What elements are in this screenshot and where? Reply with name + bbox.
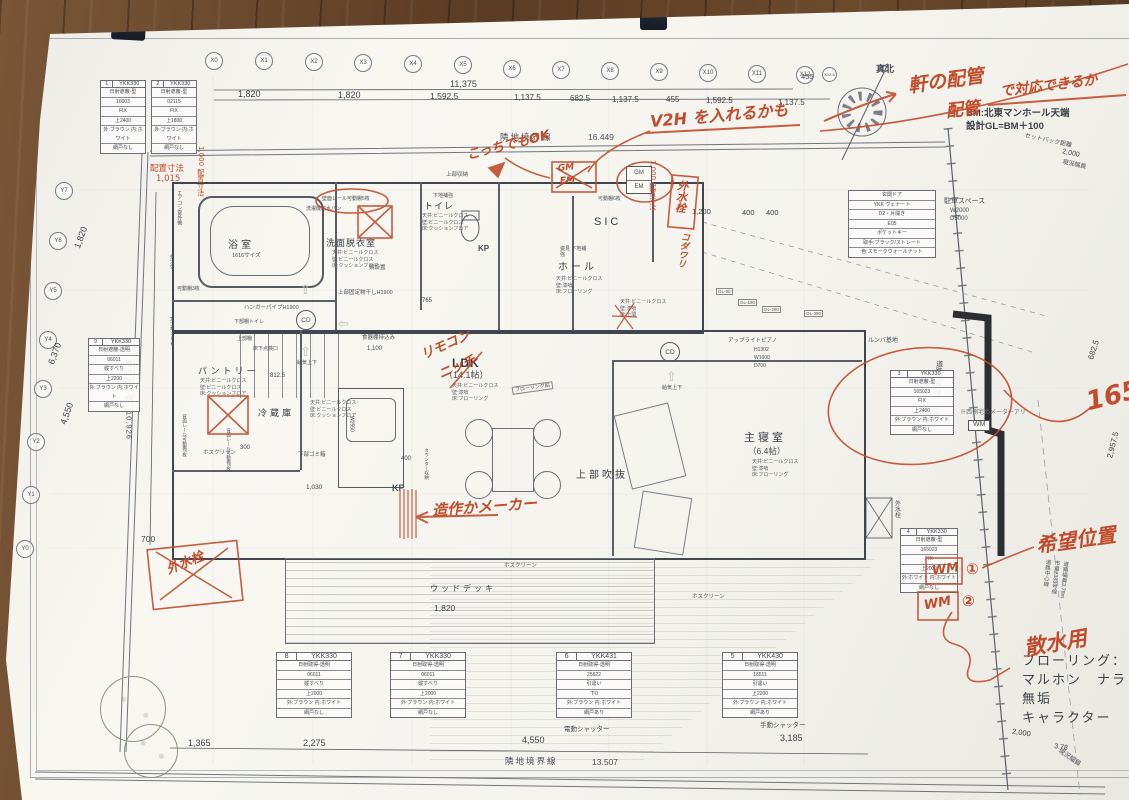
red-dim-haichi-value: 1,015 bbox=[156, 174, 180, 185]
dim-porch-400a: 400 bbox=[742, 208, 755, 217]
gl-tag: GL-190 bbox=[738, 299, 757, 306]
cd-text: CD bbox=[665, 349, 674, 356]
grid-label-y: Y5 bbox=[44, 282, 62, 300]
repeat-row: 床:クッションフロア bbox=[422, 226, 468, 233]
dim-bottom-3185: 3,185 bbox=[780, 733, 803, 744]
partition bbox=[612, 360, 862, 362]
repeat-row: 06011 bbox=[277, 671, 351, 681]
repeat-row: 上1800 bbox=[152, 117, 196, 127]
repeat-row: 165023 bbox=[891, 388, 953, 398]
repeat-row: 25622 bbox=[557, 671, 631, 681]
room-finishes-genkan: 天井:ビニールクロス壁:漆喰床:土間 bbox=[620, 299, 666, 319]
repeat-row: 網戸なし bbox=[152, 144, 196, 153]
repeat-row: 日射取得-透明 bbox=[277, 661, 351, 671]
red-dim-haichi-x9: 1,000 配置寸法 bbox=[648, 160, 657, 210]
grid-label-x: X6 bbox=[503, 60, 521, 78]
repeat-row: 網戸なし bbox=[277, 709, 351, 718]
dim-segment: 455 bbox=[666, 95, 679, 105]
window-schedule-6: 6YKK431 日射取得-透明25622引違い下0外:ブラウン 内:ホワイト網戸… bbox=[556, 652, 632, 718]
grid-label-x: X1 bbox=[255, 52, 273, 70]
dim-segment: 1,592.5 bbox=[430, 91, 458, 102]
label-piano-d: D700 bbox=[754, 363, 766, 369]
repeat-row: FIX bbox=[152, 107, 196, 117]
dim-400: 400 bbox=[401, 456, 411, 464]
vent-arrow-icon: ⇧ bbox=[300, 344, 311, 360]
label-manual-shutter: 手動シャッター bbox=[760, 722, 806, 730]
repeat-row: 日射遮蔽-型 bbox=[891, 378, 953, 388]
label-neighbor-meter: ※西側宅のメーターアリ bbox=[960, 410, 1026, 418]
label-shelves3: 可動棚3枚 bbox=[177, 286, 200, 292]
repeat-row: 床:土間 bbox=[620, 312, 666, 319]
grid-label-x: X12.5 bbox=[822, 67, 837, 82]
label-upper-shelf: 上部棚 bbox=[237, 336, 252, 342]
road-center-label: 道路中心線 市道2383号線 道路幅員3.78m bbox=[1040, 559, 1068, 599]
repeat-row: 上2000 bbox=[391, 690, 465, 700]
schedule-num: 3 bbox=[891, 371, 908, 377]
dim-8125: 812.5 bbox=[270, 373, 285, 381]
label-mirror-backing: 姿見 下地補強 bbox=[560, 246, 590, 259]
repeat-row: 16003 bbox=[101, 98, 145, 108]
room-name-fridge: 冷蔵庫 bbox=[258, 408, 294, 419]
label-electric-shutter: 電動シャッター bbox=[564, 726, 610, 734]
label-mirror: 鏡設置 bbox=[369, 265, 386, 272]
repeat-row: マルホン ナラ無垢 bbox=[1022, 671, 1129, 709]
repeat-row: YKK ヴェナート bbox=[849, 201, 935, 211]
repeat-row: 網戸なし bbox=[391, 709, 465, 718]
repeat-row: 日射遮蔽-透明 bbox=[89, 346, 139, 356]
dim-segment: 1,820 bbox=[338, 90, 361, 101]
repeat-row: D2・片開き bbox=[849, 210, 935, 220]
cd-marker: CD bbox=[660, 342, 680, 362]
room-name-sic: SIC bbox=[594, 216, 621, 230]
label-hosuku-3: ホスクリーン bbox=[692, 594, 725, 601]
repeat-row: 外:ブラウン 内:ホワイト bbox=[89, 384, 139, 402]
dim-1100: 1,100 bbox=[367, 346, 382, 354]
repeat-row: 縦すべり bbox=[89, 365, 139, 375]
room-finishes-bed: 天井:ビニールクロス壁:漆喰床:フローリング bbox=[752, 459, 798, 479]
repeat-row: 06011 bbox=[391, 671, 465, 681]
bm-note-line1: BM:北東マンホール天端 bbox=[966, 108, 1069, 120]
repeat-row: ポケットキー bbox=[849, 229, 935, 239]
bedroom-furniture bbox=[634, 490, 692, 555]
room-finishes-pantry: 天井:ビニールクロス壁:ビニールクロス床:クッションフロア bbox=[200, 378, 246, 398]
label-trash: 下部ゴミ箱 bbox=[298, 452, 326, 459]
room-name-pantry: パントリー bbox=[198, 366, 258, 377]
repeat-row: 下0 bbox=[557, 690, 631, 700]
repeat-row: E05 bbox=[849, 220, 935, 230]
dim-segment: 1,137.5 bbox=[612, 95, 639, 105]
dim-bottom-2275: 2,275 bbox=[303, 738, 326, 749]
partition bbox=[420, 182, 422, 310]
schedule-code: YKK330 bbox=[411, 653, 465, 660]
window-schedule-9: 9YKK330 日射遮蔽-透明06011縦すべり上2200外:ブラウン 内:ホワ… bbox=[88, 338, 140, 412]
room-finishes-hall: 天井:ビニールクロス壁:漆喰床:フローリング bbox=[556, 276, 602, 296]
schedule-rows: 日射取得-透明06011縦すべり上2000外:ブラウン 内:ホワイト網戸なし bbox=[277, 661, 351, 717]
grid-label-x: X8 bbox=[601, 62, 619, 80]
parking-title: 駐車スペース bbox=[944, 198, 985, 207]
bathtub-inner bbox=[210, 206, 310, 276]
schedule-code: YKK430 bbox=[743, 653, 797, 660]
partition bbox=[172, 300, 335, 302]
label-piano-w: W1600 bbox=[754, 355, 770, 361]
repeat-row: 06011 bbox=[89, 356, 139, 366]
grid-label-x: X11 bbox=[748, 65, 766, 83]
label-wm-printed: WM bbox=[968, 420, 990, 431]
label-floor-hatch: 床下点検口 bbox=[253, 346, 278, 352]
repeat-row: 引違い bbox=[557, 680, 631, 690]
repeat-row: 色:スモークウォールナット bbox=[849, 248, 935, 257]
grid-label-x: X2 bbox=[305, 53, 323, 71]
dining-chair bbox=[533, 471, 561, 499]
label-dish-cabinet: 食器棚持込み bbox=[362, 335, 395, 342]
schedule-num: 2 bbox=[152, 81, 164, 87]
label-hanger-pipe: ハンガーパイプH1900 bbox=[244, 305, 299, 312]
repeat-row: 取手:ブラック/ストレート bbox=[849, 239, 935, 249]
grid-label-x: X5 bbox=[454, 56, 472, 74]
grid-label-y: Y1 bbox=[22, 486, 40, 504]
label-outdoor-tap-printed: 外水栓 bbox=[892, 500, 900, 518]
grid-label-x: X9 bbox=[650, 63, 668, 81]
label-counter-storage: カウンター収納 bbox=[424, 448, 430, 480]
schedule-num: 5 bbox=[723, 653, 743, 660]
dim-w2550: W2550 bbox=[348, 416, 354, 432]
repeat-row: 天井:ビニールクロス bbox=[422, 213, 468, 220]
label-vent-2: 給気上下 bbox=[662, 385, 682, 391]
room-name-toilet: トイレ bbox=[424, 201, 454, 212]
grid-label-x: X4 bbox=[404, 55, 422, 73]
repeat-row: 網戸なし bbox=[89, 402, 139, 411]
repeat-row: 日射遮蔽-型 bbox=[901, 536, 957, 546]
schedule-rows: 日射遮蔽-型16003FIX上2400外:ブラウン 内:ホワイト網戸なし bbox=[101, 88, 145, 153]
grid-label-y: Y6 bbox=[49, 232, 67, 250]
dim-segment: 1,137.5 bbox=[514, 93, 541, 103]
plan-sheet: X0 X1 X2 X3 X4 X5 X6 X7 X8 X9 X10 X11 X1… bbox=[0, 0, 1129, 800]
grid-label-x: X7 bbox=[552, 61, 570, 79]
label-ecocute: エコキュート bbox=[168, 316, 174, 346]
red-note-haikan-2: 配管 bbox=[945, 98, 981, 123]
cd-text: CD bbox=[301, 317, 310, 324]
parking-w: W2000 bbox=[950, 208, 969, 216]
dim-x12-offset: 455 bbox=[801, 72, 814, 81]
repeat-row: 165023 bbox=[901, 546, 957, 556]
repeat-row: 外:ブラウン 内:ホワイト bbox=[152, 126, 196, 144]
repeat-row: 16511 bbox=[723, 671, 797, 681]
label-wall-rail: 壁面レール可動棚5枚 bbox=[322, 196, 370, 202]
red-sketch-em: EM bbox=[560, 175, 576, 187]
grid-label-y: Y2 bbox=[27, 433, 45, 451]
photo-scene: X0 X1 X2 X3 X4 X5 X6 X7 X8 X9 X10 X11 X1… bbox=[0, 0, 1129, 800]
window-schedule-7: 7YKK330 日射取得-透明06011縦すべり上2000外:ブラウン 内:ホワ… bbox=[390, 652, 466, 718]
repeat-row: 網戸あり bbox=[557, 709, 631, 718]
north-label: 真北 bbox=[876, 64, 894, 75]
dining-table bbox=[492, 428, 534, 492]
flooring-note: フローリング：マルホン ナラ無垢キャラクター bbox=[1022, 652, 1129, 727]
repeat-row: 日射取得-透明 bbox=[723, 661, 797, 671]
schedule-code: YKK330 bbox=[164, 81, 196, 87]
dim-deck-1820: 1,820 bbox=[434, 603, 455, 614]
grid-label-x: X10 bbox=[699, 64, 717, 82]
repeat-row: 天井:ビニールクロス bbox=[556, 276, 602, 283]
dim-segment: 682.5 bbox=[570, 94, 590, 104]
repeat-row: 天井:ビニールクロス bbox=[452, 383, 498, 390]
repeat-row: 外:ブラウン 内:ホワイト bbox=[723, 699, 797, 709]
repeat-row: 天井:ビニールクロス bbox=[310, 400, 356, 407]
red-dim-haichi-left: 1,000 配置寸法 bbox=[196, 146, 205, 196]
schedule-num: 4 bbox=[901, 529, 917, 535]
dining-chair bbox=[533, 419, 561, 447]
room-name-deck: ウッドデッキ bbox=[430, 584, 496, 594]
repeat-row: 外:ブラウン 内:ホワイト bbox=[277, 699, 351, 709]
schedule-code: YKK330 bbox=[103, 339, 139, 345]
repeat-row: 玄関ドア bbox=[849, 191, 935, 201]
repeat-row: 床:フローリング bbox=[556, 289, 602, 296]
schedule-rows: 日射取得-透明06011縦すべり上2000外:ブラウン 内:ホワイト網戸なし bbox=[391, 661, 465, 717]
room-finishes-ldk: 天井:ビニールクロス壁:漆喰床:フローリング bbox=[452, 383, 498, 403]
repeat-row: 上2400 bbox=[891, 407, 953, 417]
label-piano: アップライトピアノ bbox=[728, 338, 777, 345]
repeat-row: キャラクター bbox=[1022, 709, 1129, 728]
label-kp-2: KP bbox=[478, 244, 489, 254]
label-vent-1: 給気上下 bbox=[297, 360, 317, 366]
repeat-row: 外:ブラウン 内:ホワイト bbox=[891, 416, 953, 426]
label-hosuku-2: ホスクリーン bbox=[504, 563, 537, 570]
schedule-code: YKK431 bbox=[577, 653, 631, 660]
repeat-row: 網戸あり bbox=[723, 709, 797, 718]
repeat-row: 外:ブラウン 内:ホワイト bbox=[101, 126, 145, 144]
repeat-row: 網戸なし bbox=[901, 584, 957, 593]
window-schedule-5: 5YKK430 日射取得-透明16511引違い上2200外:ブラウン 内:ホワイ… bbox=[722, 652, 798, 718]
repeat-row: 縦すべり bbox=[277, 680, 351, 690]
label-lower-shelf-toilet: 下部棚トイレ bbox=[234, 319, 264, 325]
schedule-rows: 日射遮蔽-型02115FIX上1800外:ブラウン 内:ホワイト網戸なし bbox=[152, 88, 196, 153]
dim-1030: 1,030 bbox=[306, 484, 322, 492]
vent-arrow-icon: ⇧ bbox=[300, 282, 311, 298]
dim-top-total: 11,375 bbox=[450, 79, 477, 90]
dim-bottom-1365: 1,365 bbox=[188, 738, 211, 749]
repeat-row: 天井:ビニールクロス bbox=[332, 250, 378, 257]
repeat-row: 日射遮蔽-型 bbox=[152, 88, 196, 98]
room-name-wash: 洗面脱衣室 bbox=[326, 238, 376, 249]
window-schedule-2: 2YKK330 日射遮蔽-型02115FIX上1800外:ブラウン 内:ホワイト… bbox=[151, 80, 197, 154]
repeat-row: 縦すべり bbox=[391, 680, 465, 690]
grid-label-y: Y3 bbox=[34, 380, 52, 398]
label-tank: タンク bbox=[168, 254, 174, 269]
schedule-code: YKK330 bbox=[297, 653, 351, 660]
entrance-door-rows: 玄関ドアYKK ヴェナートD2・片開きE05ポケットキー取手:ブラック/ストレー… bbox=[849, 191, 935, 257]
room-name-void: 上部吹抜 bbox=[576, 470, 628, 483]
repeat-row: 天井:ビニールクロス bbox=[620, 299, 666, 306]
tree-symbol bbox=[124, 724, 178, 778]
schedule-num: 6 bbox=[557, 653, 577, 660]
repeat-row: 網戸なし bbox=[891, 426, 953, 435]
schedule-rows: 日射遮蔽-透明06011縦すべり上2200外:ブラウン 内:ホワイト網戸なし bbox=[89, 346, 139, 411]
room-name-bed: 主寝室 bbox=[744, 432, 786, 446]
bm-note-line2: 設計GL=BM＋100 bbox=[966, 121, 1044, 133]
dim-765: 765 bbox=[422, 298, 432, 306]
entrance-door-schedule: 玄関ドアYKK ヴェナートD2・片開きE05ポケットキー取手:ブラック/ストレー… bbox=[848, 190, 936, 258]
room-sub-bath: 1616サイズ bbox=[232, 253, 261, 260]
repeat-row: 床:クッションフロア bbox=[200, 391, 246, 398]
dim-300: 300 bbox=[240, 445, 250, 453]
cd-marker: CD bbox=[296, 310, 316, 330]
dim-left-700: 700 bbox=[141, 534, 155, 545]
vent-arrow-icon: ⇦ bbox=[338, 316, 349, 332]
gl-tag: GL-90 bbox=[716, 288, 733, 295]
repeat-row: 上2400 bbox=[101, 117, 145, 127]
schedule-num: 9 bbox=[89, 339, 103, 345]
dim-porch-1200: 1,200 bbox=[692, 207, 711, 216]
gl-tag: GL-390 bbox=[804, 310, 823, 317]
partition bbox=[172, 470, 300, 472]
room-finishes-toilet: 天井:ビニールクロス壁:ビニールクロス床:クッションフロア bbox=[422, 213, 468, 233]
repeat-row: 日射取得-透明 bbox=[557, 661, 631, 671]
vent-arrow-icon: ⇧ bbox=[666, 369, 677, 385]
room-name-bath: 浴室 bbox=[228, 240, 254, 253]
schedule-code: YKK330 bbox=[917, 529, 957, 535]
repeat-row: 網戸なし bbox=[101, 144, 145, 153]
schedule-code: YKK330 bbox=[113, 81, 145, 87]
partition bbox=[612, 360, 614, 556]
label-washer-pan: 洗濯機防水パン bbox=[306, 206, 341, 212]
repeat-row: 02115 bbox=[152, 98, 196, 108]
gl-tag: GL-290 bbox=[762, 306, 781, 313]
grid-label-x: X3 bbox=[354, 54, 372, 72]
red-note-wm1-num: ① bbox=[966, 560, 979, 579]
repeat-row: FIX bbox=[101, 107, 145, 117]
label-laundry-bar: 上部固定物干しH1900 bbox=[338, 290, 393, 297]
red-note-wm2-num: ② bbox=[962, 592, 975, 611]
schedule-num: 1 bbox=[101, 81, 113, 87]
repeat-row: 天井:ビニールクロス bbox=[752, 459, 798, 466]
schedule-num: 8 bbox=[277, 653, 297, 660]
grid-label-x: X0 bbox=[205, 52, 223, 70]
parking-d: D5000 bbox=[950, 216, 968, 224]
grid-label-y: Y0 bbox=[16, 540, 34, 558]
label-backing: 下地補強 bbox=[433, 193, 453, 199]
window-schedule-1: 1YKK330 日射遮蔽-型16003FIX上2400外:ブラウン 内:ホワイト… bbox=[100, 80, 146, 154]
label-kp-1: KP bbox=[392, 483, 405, 494]
repeat-row: FIX bbox=[891, 397, 953, 407]
dim-porch-400b: 400 bbox=[766, 208, 779, 217]
boundary-north-value: 16.449 bbox=[588, 132, 614, 143]
label-rear-rail-1: 背面レール可動棚5枚 bbox=[182, 414, 188, 457]
label-shelves6: 可動棚6枚 bbox=[598, 196, 621, 202]
repeat-row: 日射遮蔽-型 bbox=[101, 88, 145, 98]
repeat-row: 床:フローリング bbox=[452, 396, 498, 403]
label-aircon-outdoor: エアコン室外機 bbox=[176, 190, 182, 225]
schedule-code: YKK330 bbox=[908, 371, 953, 377]
red-sketch-gm: GM bbox=[557, 162, 574, 175]
grid-label-y: Y7 bbox=[55, 182, 73, 200]
schedule-rows: 日射取得-透明16511引違い上2200外:ブラウン 内:ホワイト網戸あり bbox=[723, 661, 797, 717]
dining-chair bbox=[465, 471, 493, 499]
repeat-row: 天井:ビニールクロス bbox=[200, 378, 246, 385]
partition bbox=[498, 182, 500, 330]
room-name-hall: ホール bbox=[558, 262, 597, 275]
schedule-rows: 日射取得-透明25622引違い下0外:ブラウン 内:ホワイト網戸あり bbox=[557, 661, 631, 717]
repeat-row: 床:フローリング bbox=[752, 472, 798, 479]
repeat-row: 引違い bbox=[723, 680, 797, 690]
repeat-row: 上2200 bbox=[723, 690, 797, 700]
repeat-row: 外:ブラウン 内:ホワイト bbox=[557, 699, 631, 709]
dim-segment: 1,820 bbox=[238, 89, 261, 100]
repeat-row: 上2200 bbox=[89, 375, 139, 385]
label-roomba: ルンバ基地 bbox=[868, 338, 898, 346]
window-schedule-8: 8YKK330 日射取得-透明06011縦すべり上2000外:ブラウン 内:ホワ… bbox=[276, 652, 352, 718]
dining-chair bbox=[465, 419, 493, 447]
label-upper-storage: 上部収納 bbox=[446, 172, 468, 179]
label-piano-h: H1302 bbox=[754, 347, 769, 353]
schedule-rows: 日射遮蔽-型165023FIX上2400外:ブラウン 内:ホワイト網戸なし bbox=[891, 378, 953, 434]
repeat-row: 外:ブラウン 内:ホワイト bbox=[391, 699, 465, 709]
label-rear-rail-2: 背面レール可動棚5枚 bbox=[226, 428, 232, 471]
repeat-row: 上2000 bbox=[277, 690, 351, 700]
room-size-bed: （6.4帖） bbox=[748, 446, 785, 457]
repeat-row: 日射取得-透明 bbox=[391, 661, 465, 671]
schedule-num: 7 bbox=[391, 653, 411, 660]
window-schedule-3: 3YKK330 日射遮蔽-型165023FIX上2400外:ブラウン 内:ホワイ… bbox=[890, 370, 954, 435]
